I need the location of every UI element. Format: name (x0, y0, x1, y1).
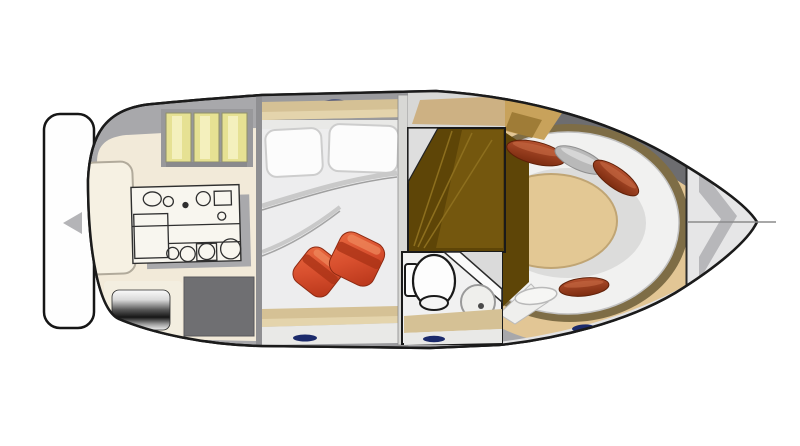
yellow-cushions (166, 113, 247, 167)
engine-hatch (184, 277, 254, 336)
head-bathroom (402, 252, 502, 345)
companionway (408, 92, 505, 252)
mid-cabin (256, 92, 408, 346)
berth-pillow-left (265, 128, 323, 178)
floorplan-svg (0, 0, 800, 446)
galley-sketch (131, 184, 251, 269)
boat-floorplan (0, 0, 800, 446)
bath-hatch (423, 336, 445, 342)
cabin-hatch-bottom (293, 335, 317, 342)
berth-pillow-right (328, 124, 399, 173)
cabin-left-wall (256, 94, 262, 345)
swim-platform (44, 114, 94, 328)
grill-cylinder (112, 290, 170, 330)
interior (82, 92, 756, 350)
companionway-top-shelf (412, 96, 505, 126)
